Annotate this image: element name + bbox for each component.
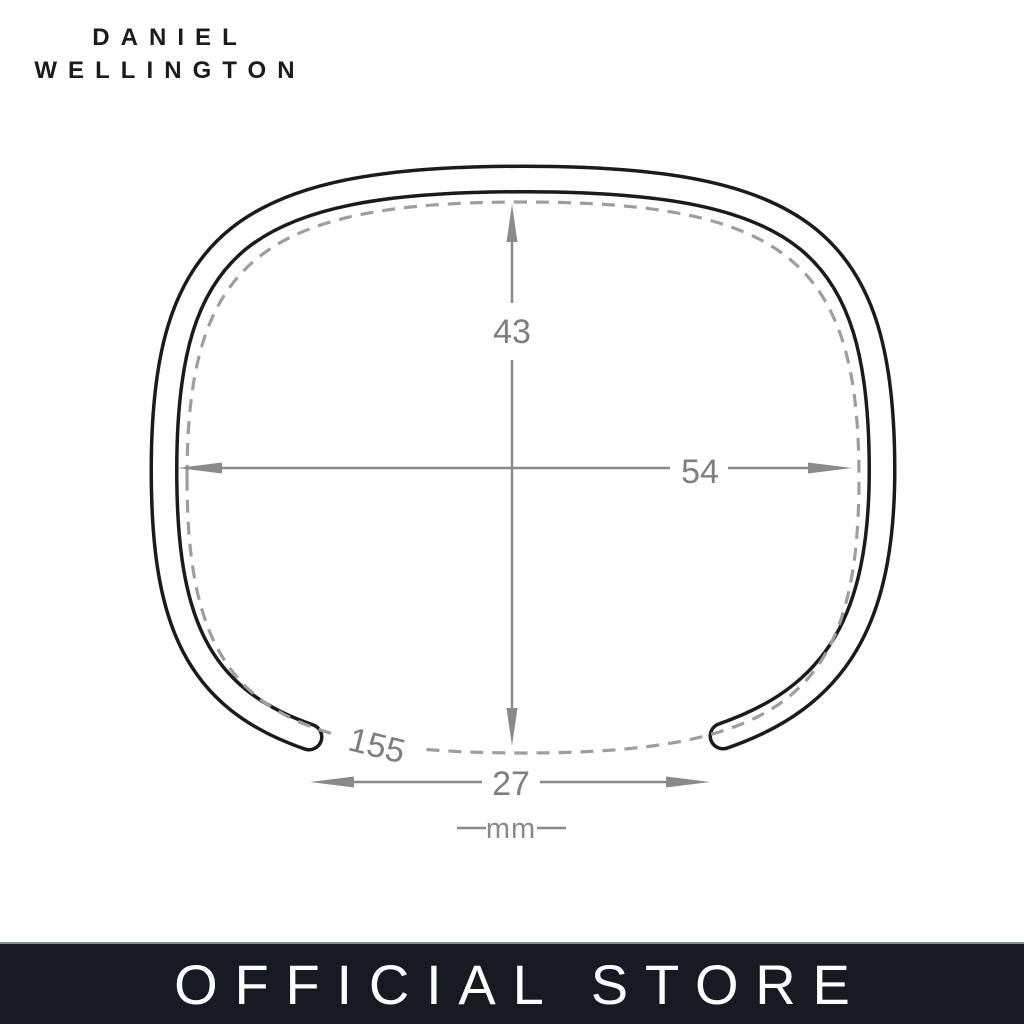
width-value-label: 54	[681, 453, 719, 491]
height-dimension: 43	[493, 204, 531, 746]
arrow-right-icon	[666, 777, 710, 788]
footer-label: OFFICIAL STORE	[157, 952, 866, 1017]
opening-value-label: 27	[492, 765, 530, 803]
arrow-down-icon	[507, 708, 518, 746]
inner-circumference-dashed-line	[187, 202, 859, 753]
cuff-dimension-diagram: 43 54 155 27 mm	[0, 0, 1024, 1024]
arrow-left-icon	[178, 463, 222, 474]
arrow-left-icon	[310, 777, 354, 788]
unit-label-group: mm	[457, 813, 566, 845]
arrow-up-icon	[507, 204, 518, 242]
circumference-value-label: 155	[345, 721, 409, 772]
footer-banner: OFFICIAL STORE	[0, 942, 1024, 1024]
height-value-label: 43	[493, 313, 531, 351]
unit-label: mm	[486, 813, 536, 845]
cuff-band-fill	[164, 179, 882, 737]
circumference-dimension: 155	[329, 714, 424, 775]
product-dimension-image: DANIEL WELLINGTON 43 54 155	[0, 0, 1024, 1024]
width-dimension: 54	[178, 453, 852, 491]
opening-dimension: 27	[310, 765, 710, 803]
arrow-right-icon	[808, 463, 852, 474]
cuff-band-outline	[164, 179, 882, 737]
